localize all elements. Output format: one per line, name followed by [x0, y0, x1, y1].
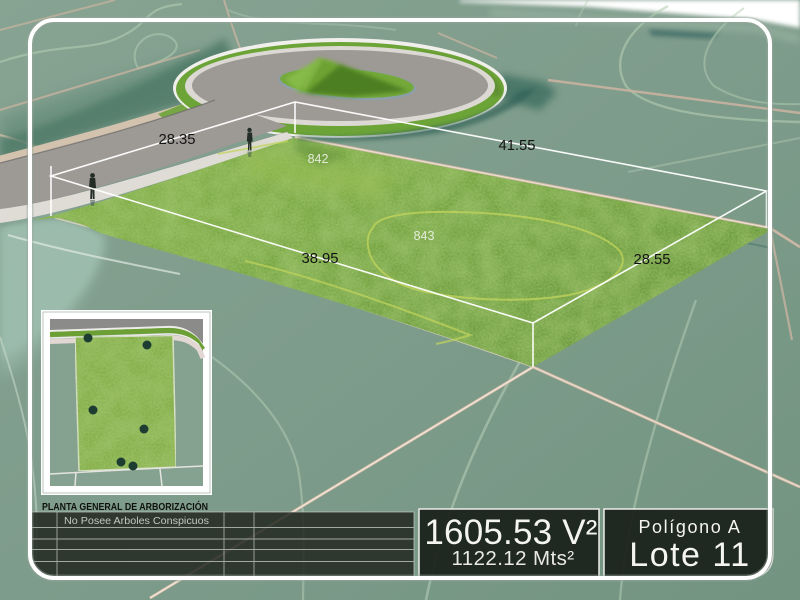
- svg-text:842: 842: [308, 152, 329, 166]
- svg-text:28.35: 28.35: [158, 132, 195, 148]
- svg-text:843: 843: [414, 229, 435, 243]
- svg-text:28.55: 28.55: [633, 252, 670, 268]
- svg-text:PLANTA GENERAL DE ARBORIZACIÓN: PLANTA GENERAL DE ARBORIZACIÓN: [42, 500, 208, 513]
- svg-text:Polígono A: Polígono A: [638, 517, 741, 537]
- svg-text:1122.12 Mts²: 1122.12 Mts²: [452, 547, 575, 570]
- svg-text:No Posee Arboles Conspicuos: No Posee Arboles Conspicuos: [64, 515, 209, 527]
- svg-text:41.55: 41.55: [498, 138, 535, 154]
- svg-text:Lote 11: Lote 11: [629, 536, 750, 574]
- svg-text:38.95: 38.95: [301, 251, 338, 267]
